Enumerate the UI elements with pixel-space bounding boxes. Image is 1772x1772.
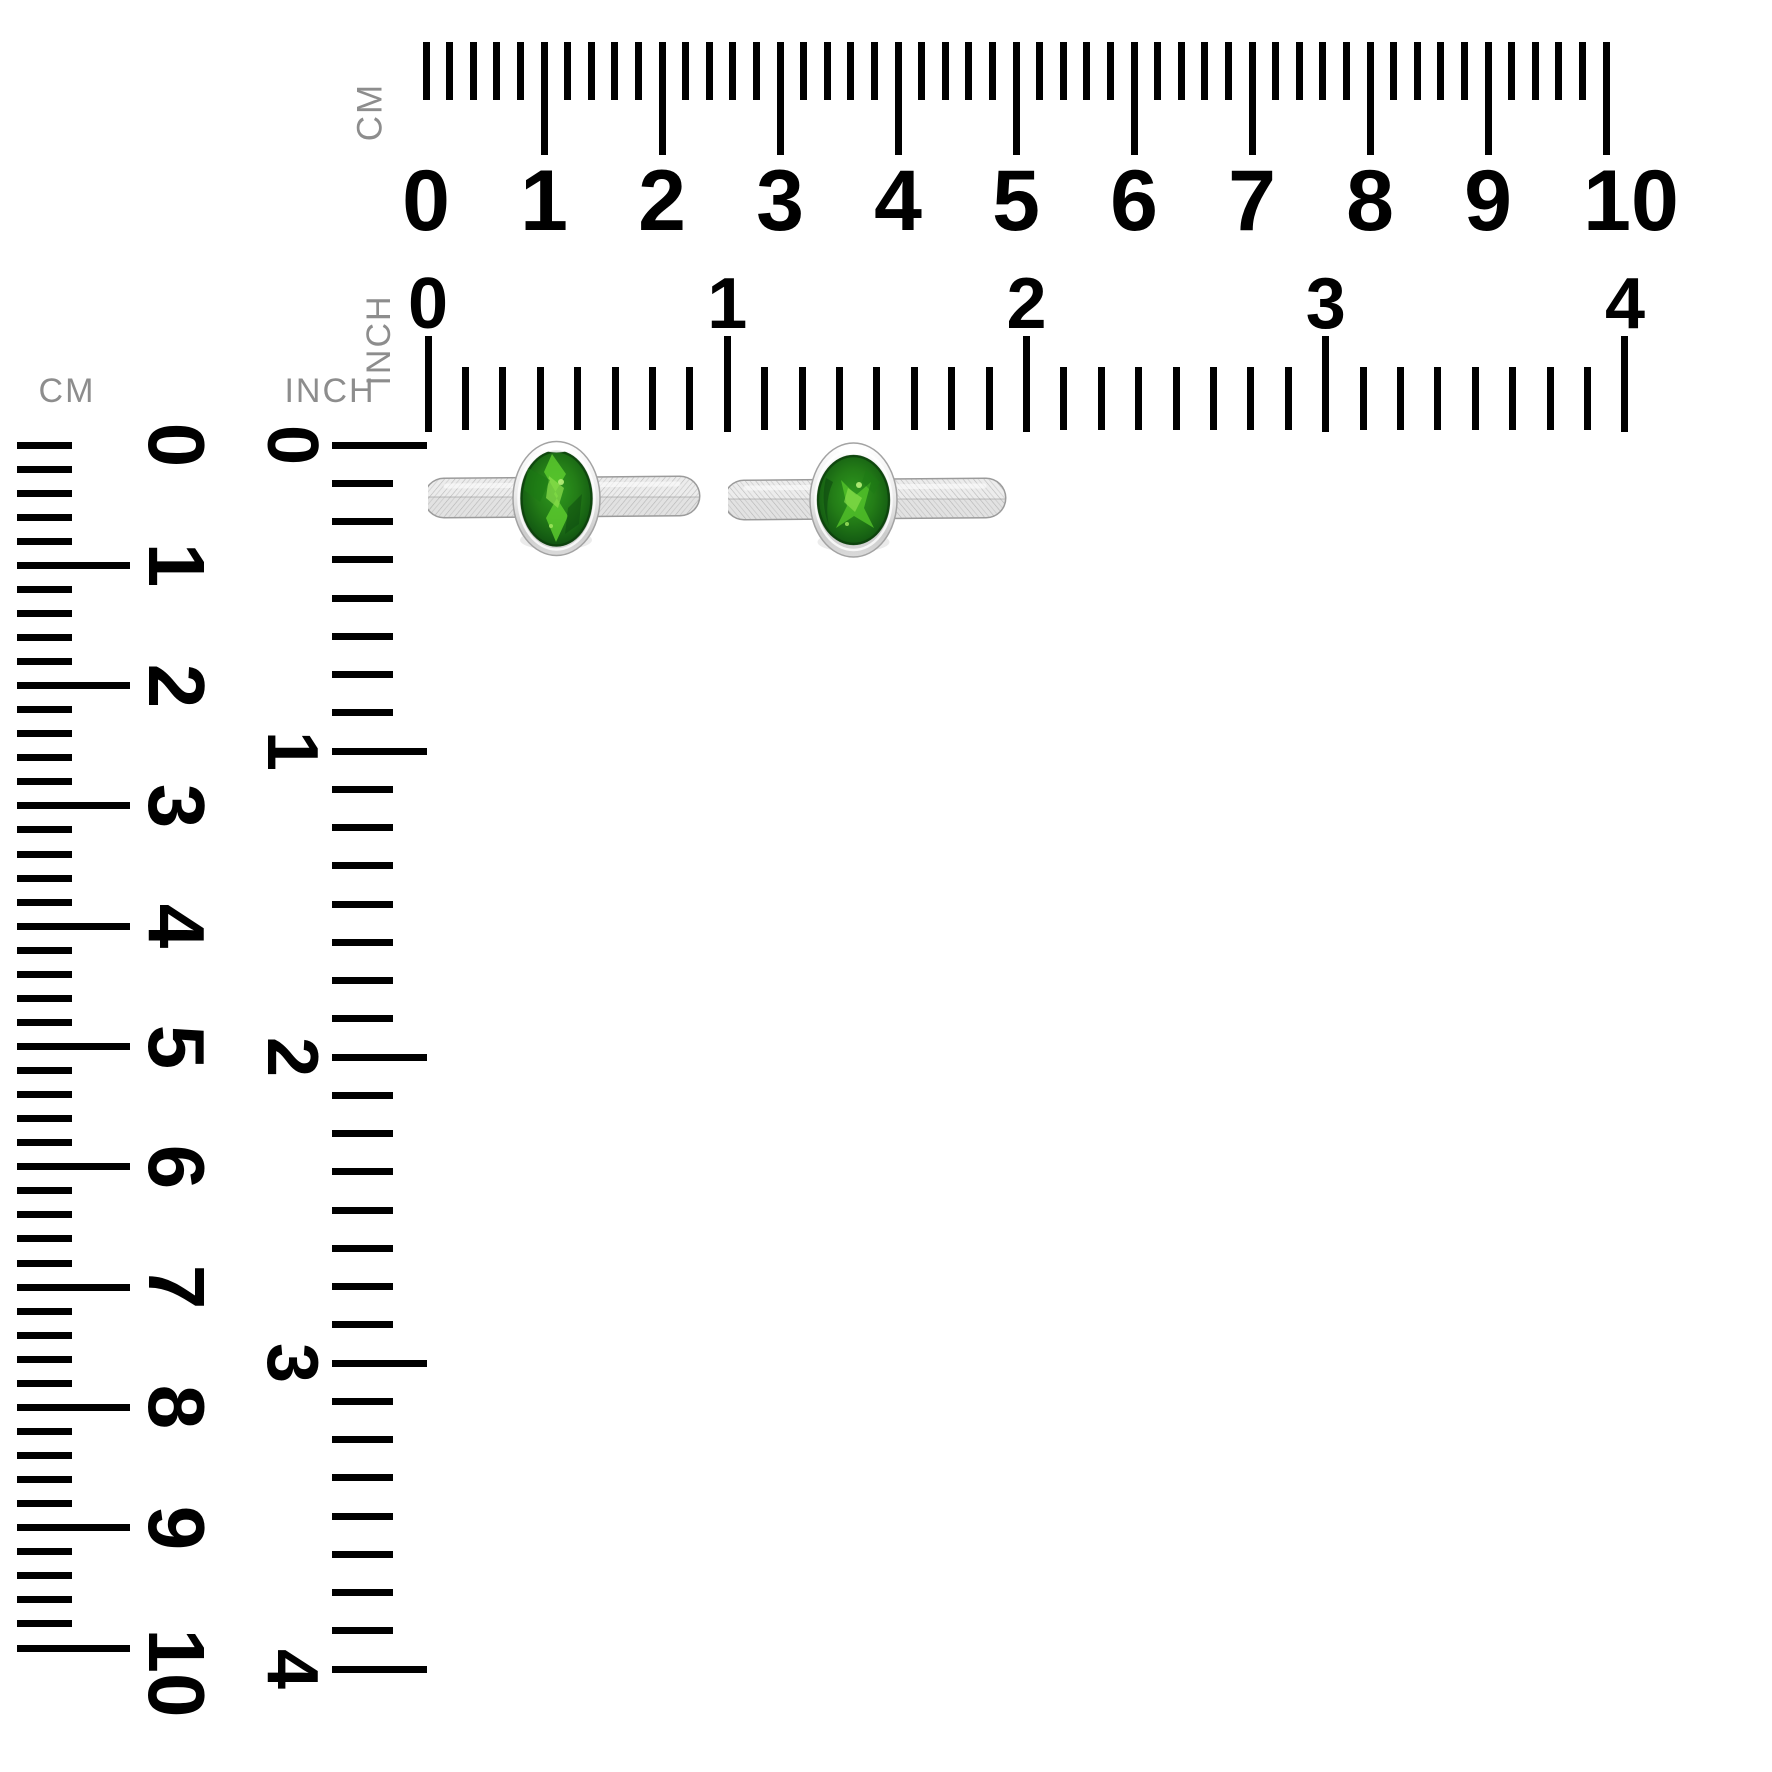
cm-horizontal-minor-tick bbox=[1343, 42, 1350, 100]
cm-vertical-minor-tick bbox=[17, 971, 72, 978]
cm-horizontal-minor-tick bbox=[871, 42, 878, 100]
cm-vertical-minor-tick bbox=[17, 851, 72, 858]
cm-vertical-minor-tick bbox=[17, 1596, 72, 1603]
cm-vertical-minor-tick bbox=[17, 1187, 72, 1194]
inch-vertical-minor-tick bbox=[332, 480, 393, 487]
cm-vertical-major-tick bbox=[17, 802, 130, 809]
cm-vertical-minor-tick bbox=[17, 754, 72, 761]
cm-vertical-minor-tick bbox=[17, 1019, 72, 1026]
cm-horizontal-minor-tick bbox=[635, 42, 642, 100]
bezel-highlight bbox=[542, 444, 572, 453]
cm-vertical-minor-tick bbox=[17, 658, 72, 665]
inch-vertical-minor-tick bbox=[332, 1283, 393, 1290]
cm-horizontal-minor-tick bbox=[1579, 42, 1586, 100]
cm-horizontal-major-tick bbox=[895, 42, 902, 155]
inch-vertical-minor-tick bbox=[332, 633, 393, 640]
inch-vertical-minor-tick bbox=[332, 862, 393, 869]
inch-horizontal-major-tick bbox=[1621, 336, 1628, 432]
cm-horizontal-number: 8 bbox=[1346, 158, 1394, 244]
cm-vertical-minor-tick bbox=[17, 1356, 72, 1363]
inch-horizontal-minor-tick bbox=[1360, 367, 1367, 430]
inch-horizontal-minor-tick bbox=[1060, 367, 1067, 430]
cm-vertical-minor-tick bbox=[17, 1548, 72, 1555]
cm-horizontal-minor-tick bbox=[1319, 42, 1326, 100]
cm-horizontal-number: 0 bbox=[402, 158, 450, 244]
cm-vertical-major-tick bbox=[17, 1284, 130, 1291]
inch-horizontal-minor-tick bbox=[1135, 367, 1142, 430]
inch-vertical-minor-tick bbox=[332, 1551, 393, 1558]
cm-horizontal-number: 6 bbox=[1110, 158, 1158, 244]
cm-horizontal-minor-tick bbox=[1036, 42, 1043, 100]
cm-horizontal-minor-tick bbox=[1532, 42, 1539, 100]
cm-vertical-minor-tick bbox=[17, 634, 72, 641]
measurement-photo-canvas: CM INCH CM INCH 012345678910 01234 01234… bbox=[0, 0, 1772, 1772]
cm-vertical-major-tick bbox=[17, 1524, 130, 1531]
cm-horizontal-minor-tick bbox=[847, 42, 854, 100]
cm-vertical-major-tick bbox=[17, 562, 130, 569]
cm-horizontal-minor-tick bbox=[1461, 42, 1468, 100]
inch-vertical-minor-tick bbox=[332, 1245, 393, 1252]
inch-vertical-minor-tick bbox=[332, 1015, 393, 1022]
cm-vertical-number: 2 bbox=[136, 663, 216, 708]
inch-horizontal-minor-tick bbox=[1509, 367, 1516, 430]
cm-horizontal-minor-tick bbox=[942, 42, 949, 100]
gemstone bbox=[817, 455, 890, 545]
cm-vertical-minor-tick bbox=[17, 826, 72, 833]
inch-horizontal-major-tick bbox=[425, 336, 432, 432]
inch-horizontal-major-tick bbox=[1023, 336, 1030, 432]
cm-horizontal-minor-tick bbox=[1272, 42, 1279, 100]
inch-horizontal-minor-tick bbox=[1547, 367, 1554, 430]
inch-vertical-minor-tick bbox=[332, 1092, 393, 1099]
cm-horizontal-major-tick bbox=[1367, 42, 1374, 155]
inch-horizontal-minor-tick bbox=[911, 367, 918, 430]
cm-horizontal-major-tick bbox=[1603, 42, 1610, 155]
inch-vertical-minor-tick bbox=[332, 1321, 393, 1328]
cm-vertical-minor-tick bbox=[17, 1380, 72, 1387]
inch-vertical-minor-tick bbox=[332, 709, 393, 716]
cm-horizontal-major-tick bbox=[659, 42, 666, 155]
cm-horizontal-minor-tick bbox=[1060, 42, 1067, 100]
cm-horizontal-major-tick bbox=[1131, 42, 1138, 155]
inch-horizontal-minor-tick bbox=[1472, 367, 1479, 430]
inch-horizontal-minor-tick bbox=[1434, 367, 1441, 430]
cm-vertical-minor-tick bbox=[17, 466, 72, 473]
inch-horizontal-minor-tick bbox=[1285, 367, 1292, 430]
inch-vertical-minor-tick bbox=[332, 786, 393, 793]
cm-vertical-number: 1 bbox=[136, 543, 216, 588]
inch-horizontal-minor-tick bbox=[574, 367, 581, 430]
inch-vertical-number: 4 bbox=[256, 1649, 328, 1689]
cm-vertical-unit-label: CM bbox=[39, 374, 96, 408]
inch-vertical-minor-tick bbox=[332, 671, 393, 678]
cm-vertical-minor-tick bbox=[17, 1308, 72, 1315]
inch-vertical-unit-label: INCH bbox=[284, 374, 375, 408]
cm-vertical-number: 6 bbox=[136, 1145, 216, 1190]
cm-horizontal-minor-tick bbox=[611, 42, 618, 100]
inch-vertical-major-tick bbox=[332, 1054, 427, 1061]
cm-horizontal-minor-tick bbox=[1414, 42, 1421, 100]
cm-horizontal-minor-tick bbox=[1083, 42, 1090, 100]
cm-vertical-minor-tick bbox=[17, 1428, 72, 1435]
inch-vertical-number: 1 bbox=[256, 731, 328, 771]
cm-horizontal-minor-tick bbox=[470, 42, 477, 100]
cm-vertical-minor-tick bbox=[17, 1235, 72, 1242]
cm-horizontal-minor-tick bbox=[989, 42, 996, 100]
inch-vertical-minor-tick bbox=[332, 901, 393, 908]
cm-vertical-number: 0 bbox=[136, 423, 216, 468]
inch-horizontal-number: 1 bbox=[707, 268, 747, 340]
ring-left bbox=[428, 436, 718, 566]
cm-horizontal-major-tick bbox=[777, 42, 784, 155]
cm-vertical-minor-tick bbox=[17, 1115, 72, 1122]
cm-vertical-number: 5 bbox=[136, 1024, 216, 1069]
cm-vertical-number: 7 bbox=[136, 1265, 216, 1310]
cm-vertical-minor-tick bbox=[17, 514, 72, 521]
inch-horizontal-minor-tick bbox=[1397, 367, 1404, 430]
cm-horizontal-minor-tick bbox=[1437, 42, 1444, 100]
cm-vertical-minor-tick bbox=[17, 1067, 72, 1074]
cm-horizontal-major-tick bbox=[1013, 42, 1020, 155]
cm-horizontal-minor-tick bbox=[706, 42, 713, 100]
inch-horizontal-number: 3 bbox=[1306, 268, 1346, 340]
cm-horizontal-number: 10 bbox=[1583, 158, 1679, 244]
cm-horizontal-major-tick bbox=[1249, 42, 1256, 155]
cm-horizontal-minor-tick bbox=[800, 42, 807, 100]
cm-horizontal-number: 5 bbox=[992, 158, 1040, 244]
inch-horizontal-minor-tick bbox=[462, 367, 469, 430]
inch-vertical-minor-tick bbox=[332, 1436, 393, 1443]
inch-vertical-minor-tick bbox=[332, 1589, 393, 1596]
cm-vertical-number: 3 bbox=[136, 784, 216, 829]
inch-horizontal-number: 0 bbox=[408, 268, 448, 340]
cm-horizontal-major-tick bbox=[1485, 42, 1492, 155]
cm-vertical-minor-tick bbox=[17, 442, 72, 449]
gemstone bbox=[521, 451, 593, 547]
cm-vertical-number: 4 bbox=[136, 904, 216, 949]
cm-vertical-major-tick bbox=[17, 1043, 130, 1050]
cm-horizontal-minor-tick bbox=[1225, 42, 1232, 100]
inch-vertical-major-tick bbox=[332, 1360, 427, 1367]
inch-vertical-minor-tick bbox=[332, 824, 393, 831]
cm-vertical-minor-tick bbox=[17, 538, 72, 545]
cm-vertical-minor-tick bbox=[17, 1476, 72, 1483]
cm-horizontal-major-tick bbox=[541, 42, 548, 155]
bezel-highlight bbox=[839, 446, 869, 455]
cm-vertical-minor-tick bbox=[17, 1211, 72, 1218]
cm-vertical-minor-tick bbox=[17, 1500, 72, 1507]
cm-vertical-minor-tick bbox=[17, 1139, 72, 1146]
cm-vertical-minor-tick bbox=[17, 1572, 72, 1579]
cm-vertical-minor-tick bbox=[17, 778, 72, 785]
cm-vertical-minor-tick bbox=[17, 1452, 72, 1459]
ring-right bbox=[728, 436, 1018, 566]
inch-horizontal-minor-tick bbox=[1247, 367, 1254, 430]
cm-vertical-number: 8 bbox=[136, 1385, 216, 1430]
inch-horizontal-minor-tick bbox=[761, 367, 768, 430]
inch-horizontal-minor-tick bbox=[799, 367, 806, 430]
cm-vertical-number: 10 bbox=[136, 1629, 216, 1718]
inch-vertical-minor-tick bbox=[332, 518, 393, 525]
inch-horizontal-minor-tick bbox=[1173, 367, 1180, 430]
inch-horizontal-major-tick bbox=[1322, 336, 1329, 432]
cm-horizontal-number: 3 bbox=[756, 158, 804, 244]
cm-horizontal-minor-tick bbox=[1107, 42, 1114, 100]
inch-horizontal-major-tick bbox=[724, 336, 731, 432]
inch-vertical-minor-tick bbox=[332, 556, 393, 563]
cm-vertical-minor-tick bbox=[17, 490, 72, 497]
cm-horizontal-minor-tick bbox=[1296, 42, 1303, 100]
cm-vertical-minor-tick bbox=[17, 875, 72, 882]
inch-vertical-minor-tick bbox=[332, 939, 393, 946]
cm-horizontal-minor-tick bbox=[1508, 42, 1515, 100]
cm-vertical-minor-tick bbox=[17, 730, 72, 737]
inch-horizontal-minor-tick bbox=[948, 367, 955, 430]
cm-vertical-minor-tick bbox=[17, 1091, 72, 1098]
cm-horizontal-minor-tick bbox=[824, 42, 831, 100]
inch-vertical-minor-tick bbox=[332, 977, 393, 984]
inch-horizontal-number: 4 bbox=[1605, 268, 1645, 340]
inch-vertical-minor-tick bbox=[332, 1207, 393, 1214]
cm-horizontal-minor-tick bbox=[965, 42, 972, 100]
cm-horizontal-minor-tick bbox=[682, 42, 689, 100]
inch-vertical-number: 0 bbox=[256, 425, 328, 465]
cm-vertical-minor-tick bbox=[17, 586, 72, 593]
inch-horizontal-minor-tick bbox=[1210, 367, 1217, 430]
cm-horizontal-unit-label: CM bbox=[353, 83, 388, 141]
cm-vertical-minor-tick bbox=[17, 706, 72, 713]
cm-horizontal-number: 1 bbox=[520, 158, 568, 244]
inch-vertical-minor-tick bbox=[332, 1513, 393, 1520]
cm-horizontal-minor-tick bbox=[493, 42, 500, 100]
cm-horizontal-minor-tick bbox=[1555, 42, 1562, 100]
inch-horizontal-minor-tick bbox=[1098, 367, 1105, 430]
cm-horizontal-number: 4 bbox=[874, 158, 922, 244]
cm-vertical-minor-tick bbox=[17, 1620, 72, 1627]
inch-horizontal-minor-tick bbox=[649, 367, 656, 430]
inch-vertical-major-tick bbox=[332, 442, 427, 449]
inch-horizontal-minor-tick bbox=[537, 367, 544, 430]
inch-horizontal-minor-tick bbox=[612, 367, 619, 430]
inch-vertical-number: 3 bbox=[256, 1343, 328, 1383]
cm-horizontal-minor-tick bbox=[753, 42, 760, 100]
cm-vertical-major-tick bbox=[17, 1163, 130, 1170]
inch-horizontal-minor-tick bbox=[986, 367, 993, 430]
inch-horizontal-number: 2 bbox=[1006, 268, 1046, 340]
inch-vertical-minor-tick bbox=[332, 1168, 393, 1175]
cm-vertical-major-tick bbox=[17, 1645, 130, 1652]
cm-horizontal-minor-tick bbox=[1154, 42, 1161, 100]
inch-horizontal-minor-tick bbox=[499, 367, 506, 430]
cm-vertical-minor-tick bbox=[17, 899, 72, 906]
inch-vertical-minor-tick bbox=[332, 1130, 393, 1137]
inch-horizontal-minor-tick bbox=[1584, 367, 1591, 430]
cm-vertical-minor-tick bbox=[17, 1332, 72, 1339]
inch-vertical-minor-tick bbox=[332, 1474, 393, 1481]
cm-horizontal-minor-tick bbox=[517, 42, 524, 100]
cm-horizontal-minor-tick bbox=[1178, 42, 1185, 100]
inch-vertical-number: 2 bbox=[256, 1037, 328, 1077]
inch-vertical-major-tick bbox=[332, 748, 427, 755]
cm-horizontal-minor-tick bbox=[1201, 42, 1208, 100]
cm-vertical-number: 9 bbox=[136, 1505, 216, 1550]
inch-vertical-major-tick bbox=[332, 1666, 427, 1673]
inch-vertical-minor-tick bbox=[332, 1398, 393, 1405]
cm-horizontal-number: 9 bbox=[1464, 158, 1512, 244]
cm-horizontal-minor-tick bbox=[588, 42, 595, 100]
cm-horizontal-minor-tick bbox=[564, 42, 571, 100]
cm-horizontal-minor-tick bbox=[1390, 42, 1397, 100]
inch-horizontal-minor-tick bbox=[836, 367, 843, 430]
cm-vertical-major-tick bbox=[17, 1404, 130, 1411]
cm-vertical-minor-tick bbox=[17, 610, 72, 617]
cm-horizontal-minor-tick bbox=[423, 42, 430, 100]
cm-vertical-major-tick bbox=[17, 923, 130, 930]
cm-vertical-minor-tick bbox=[17, 947, 72, 954]
inch-vertical-minor-tick bbox=[332, 1627, 393, 1634]
inch-horizontal-minor-tick bbox=[686, 367, 693, 430]
cm-horizontal-number: 7 bbox=[1228, 158, 1276, 244]
cm-horizontal-number: 2 bbox=[638, 158, 686, 244]
cm-horizontal-minor-tick bbox=[729, 42, 736, 100]
cm-vertical-minor-tick bbox=[17, 1260, 72, 1267]
inch-vertical-minor-tick bbox=[332, 595, 393, 602]
inch-horizontal-minor-tick bbox=[873, 367, 880, 430]
cm-horizontal-minor-tick bbox=[918, 42, 925, 100]
cm-horizontal-minor-tick bbox=[446, 42, 453, 100]
cm-vertical-minor-tick bbox=[17, 995, 72, 1002]
cm-vertical-major-tick bbox=[17, 682, 130, 689]
